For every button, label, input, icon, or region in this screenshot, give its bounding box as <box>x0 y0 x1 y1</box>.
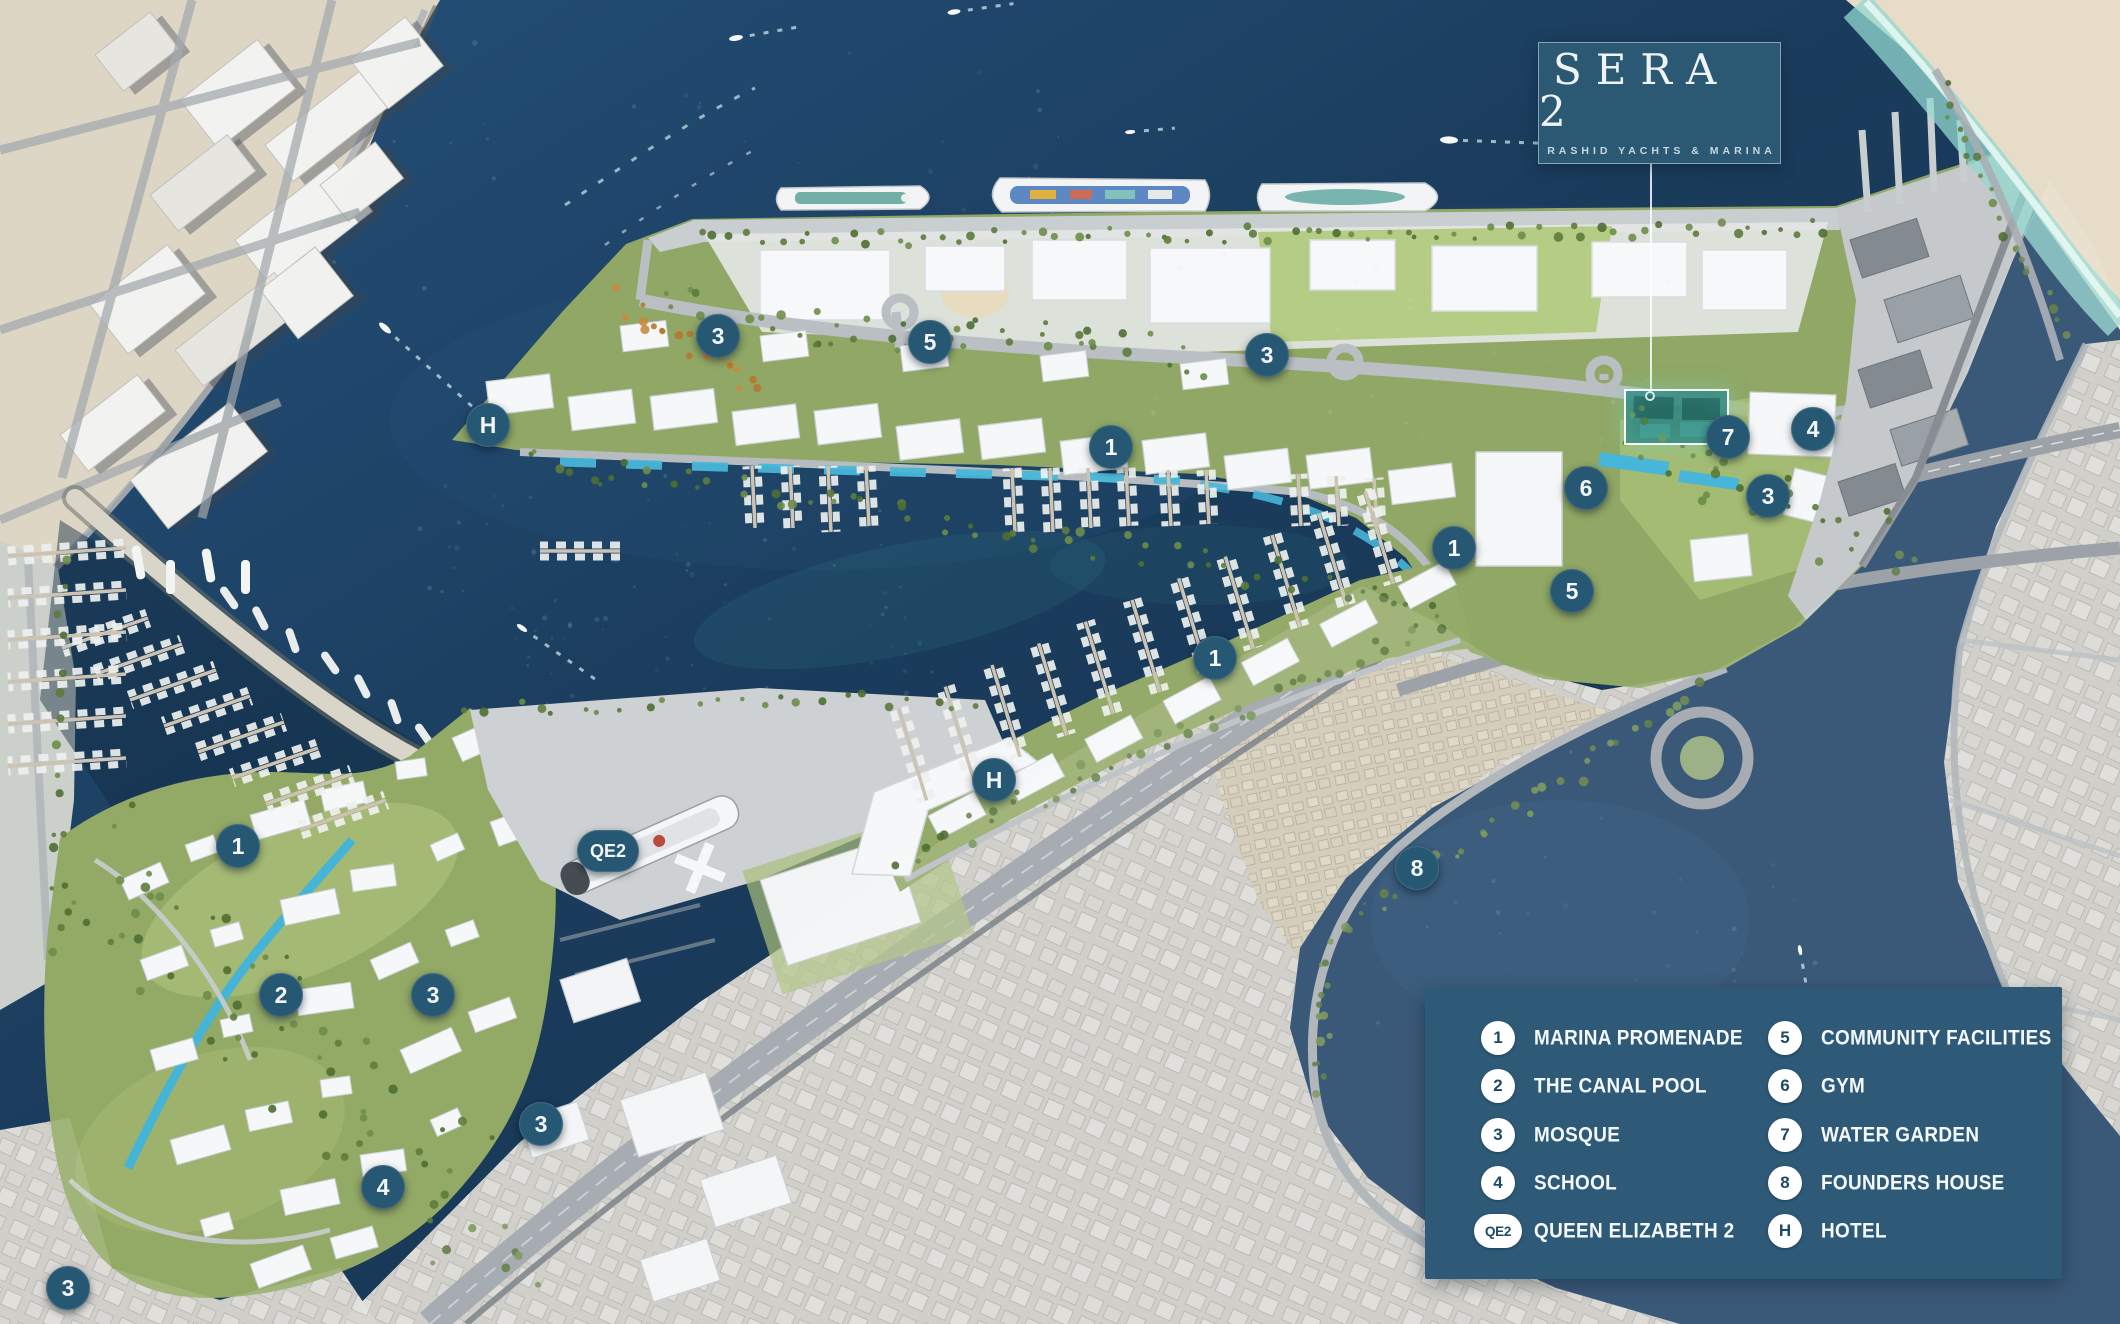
legend-panel: 1MARINA PROMENADE2THE CANAL POOL3MOSQUE4… <box>1425 987 2062 1279</box>
masterplan-map: SERA 2 RASHID YACHTS & MARINA 1MARINA PR… <box>0 0 2120 1324</box>
logo-subtitle: RASHID YACHTS & MARINA <box>1543 145 1776 157</box>
map-marker-hotel[interactable]: H <box>466 403 510 447</box>
map-marker-mosque[interactable]: 3 <box>1746 474 1790 518</box>
map-marker-marina-promenade[interactable]: 1 <box>1089 425 1133 469</box>
legend-label: HOTEL <box>1821 1219 1887 1244</box>
legend-item-community-facilities: 5COMMUNITY FACILITIES <box>1425 1021 2062 1055</box>
legend-badge: 6 <box>1768 1069 1802 1103</box>
map-marker-community-facilities[interactable]: 5 <box>1550 569 1594 613</box>
large-building <box>1476 452 1562 566</box>
map-marker-marina-promenade[interactable]: 1 <box>216 824 260 868</box>
cruise-ship <box>1258 183 1438 211</box>
legend-label: WATER GARDEN <box>1821 1123 1979 1148</box>
legend-badge: 7 <box>1768 1118 1802 1152</box>
map-marker-hotel[interactable]: H <box>972 758 1016 802</box>
map-marker-mosque[interactable]: 3 <box>1245 333 1289 377</box>
legend-item-hotel: HHOTEL <box>1425 1214 2062 1248</box>
map-marker-founders-house[interactable]: 8 <box>1395 846 1439 890</box>
map-marker-school[interactable]: 4 <box>361 1165 405 1209</box>
legend-badge: 8 <box>1768 1166 1802 1200</box>
legend-label: GYM <box>1821 1074 1865 1099</box>
map-marker-the-canal-pool[interactable]: 2 <box>259 973 303 1017</box>
legend-label: COMMUNITY FACILITIES <box>1821 1026 2052 1051</box>
map-marker-school[interactable]: 4 <box>1791 407 1835 451</box>
map-marker-gym[interactable]: 6 <box>1564 466 1608 510</box>
project-logo-card: SERA 2 RASHID YACHTS & MARINA <box>1538 42 1781 164</box>
map-marker-mosque[interactable]: 3 <box>411 973 455 1017</box>
map-marker-water-garden[interactable]: 7 <box>1706 415 1750 459</box>
cruise-ship <box>992 178 1209 212</box>
legend-item-water-garden: 7WATER GARDEN <box>1425 1118 2062 1152</box>
leader-line <box>1650 164 1652 391</box>
map-marker-community-facilities[interactable]: 5 <box>908 320 952 364</box>
legend-label: FOUNDERS HOUSE <box>1821 1171 2005 1196</box>
map-marker-mosque[interactable]: 3 <box>696 314 740 358</box>
map-marker-marina-promenade[interactable]: 1 <box>1193 636 1237 680</box>
map-marker-mosque[interactable]: 3 <box>46 1266 90 1310</box>
map-marker-mosque[interactable]: 3 <box>519 1102 563 1146</box>
map-marker-queen-elizabeth-2[interactable]: QE2 <box>577 830 639 872</box>
map-marker-marina-promenade[interactable]: 1 <box>1432 526 1476 570</box>
legend-badge: 5 <box>1768 1021 1802 1055</box>
legend-item-founders-house: 8FOUNDERS HOUSE <box>1425 1166 2062 1200</box>
logo-title: SERA 2 <box>1539 49 1780 133</box>
legend-badge: H <box>1768 1214 1802 1248</box>
legend-item-gym: 6GYM <box>1425 1069 2062 1103</box>
cruise-ship <box>777 186 930 210</box>
